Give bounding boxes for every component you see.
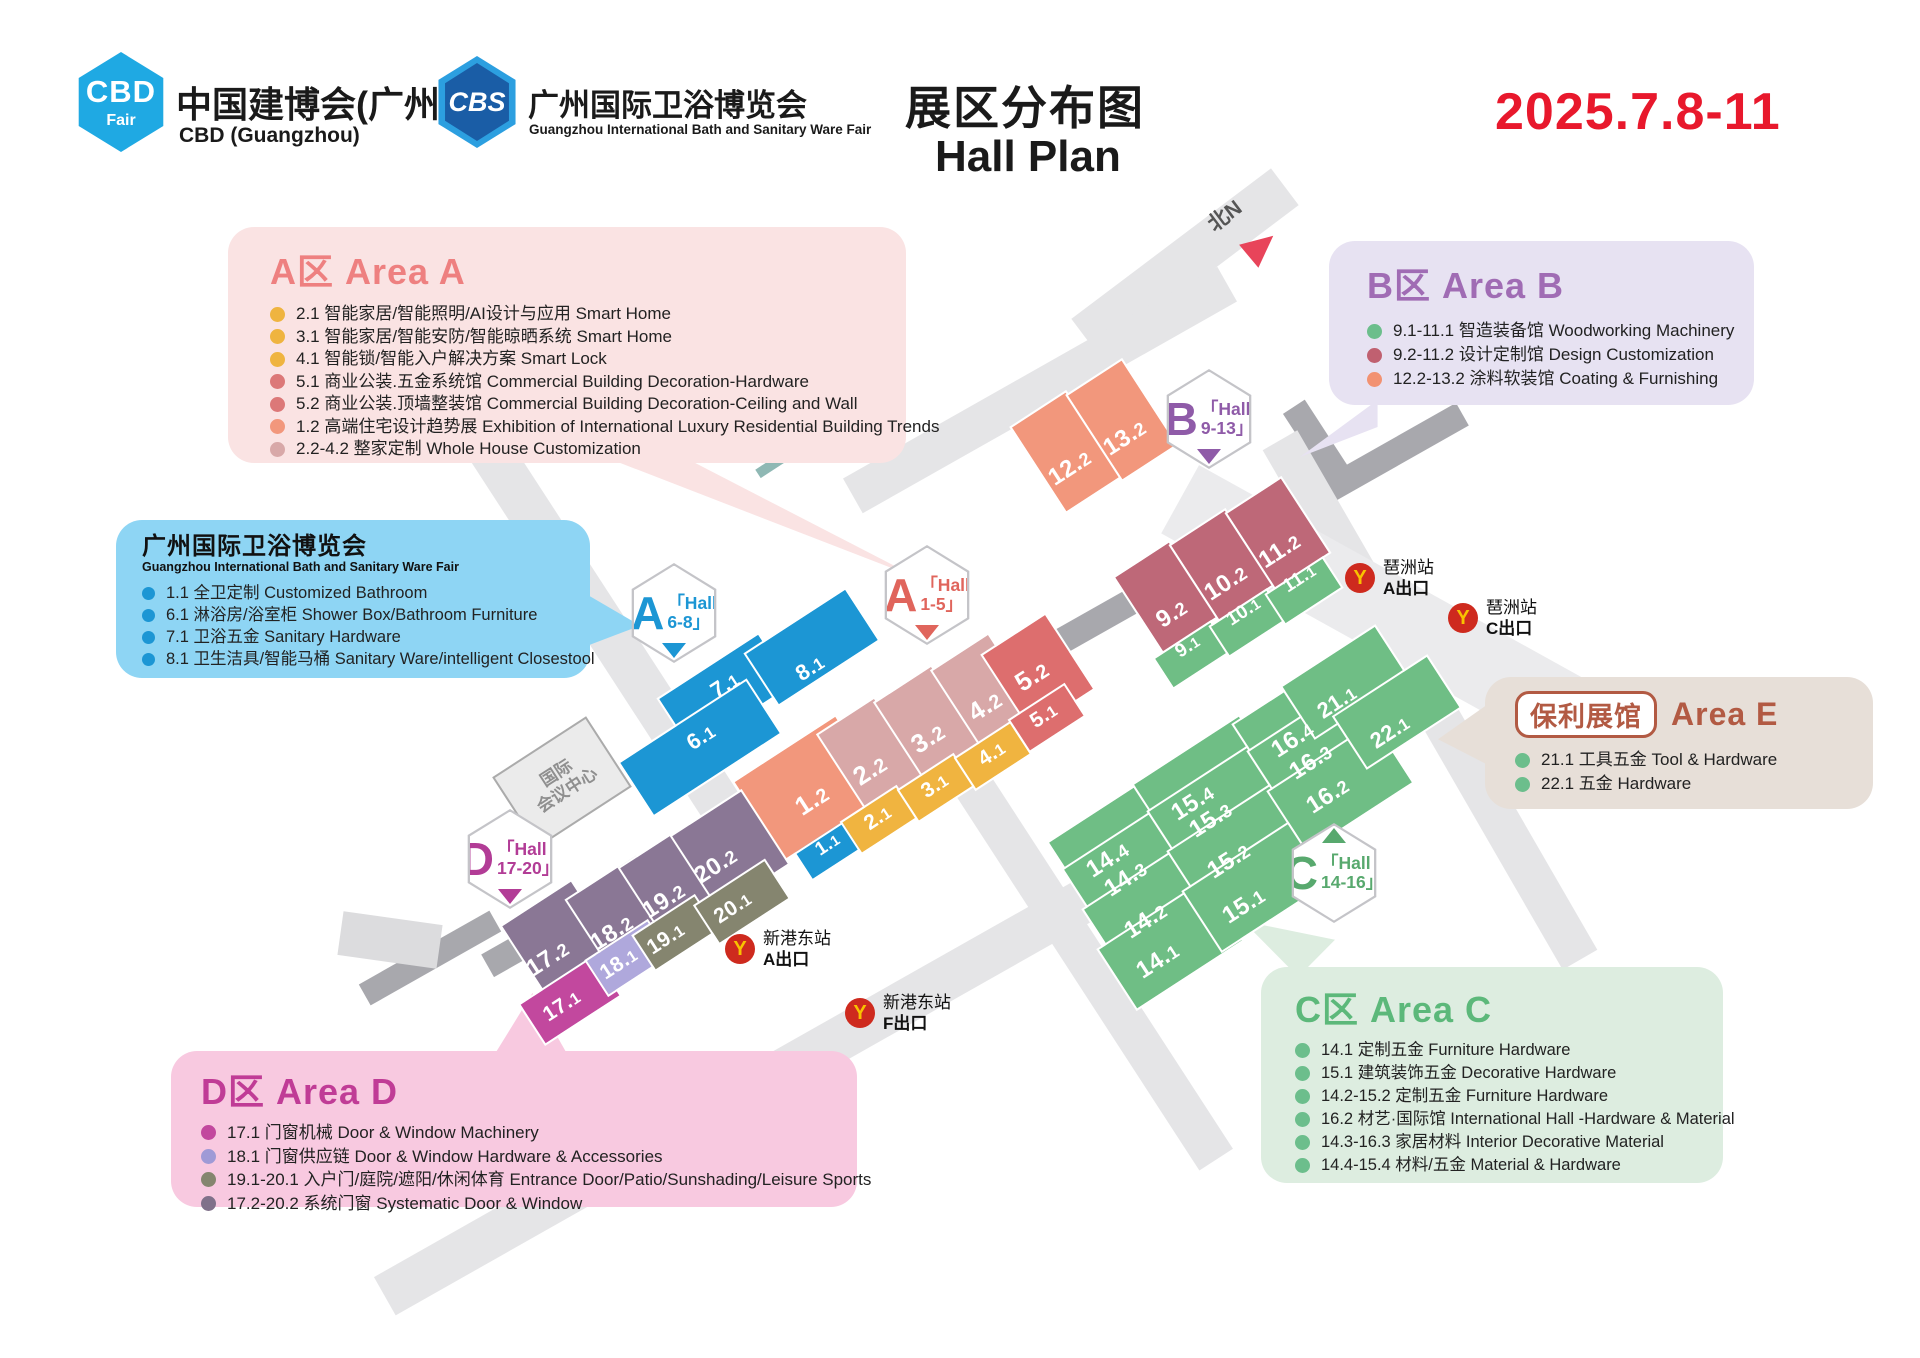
legend-dot-icon — [1367, 324, 1382, 339]
station-exit: C出口 — [1486, 618, 1537, 639]
station-exit: A出口 — [1383, 578, 1434, 599]
metro-icon: Y — [845, 998, 875, 1028]
metro-icon: Y — [1345, 563, 1375, 593]
legend-item: 22.1 五金 Hardware — [1515, 772, 1857, 796]
hall-badge: C 「Hall 14-16」 — [1288, 823, 1380, 923]
legend-item: 18.1 门窗供应链 Door & Window Hardware & Acce… — [201, 1145, 841, 1169]
hall-badge: B 「Hall 9-13」 — [1163, 369, 1255, 469]
legend-area-d: D区 Area D 17.1 门窗机械 Door & Window Machin… — [171, 1051, 857, 1207]
badge-letter: C — [1285, 850, 1318, 896]
metro-station-label: 新港东站 F出口 — [883, 992, 951, 1035]
road — [337, 911, 442, 968]
legend-item: 21.1 工具五金 Tool & Hardware — [1515, 748, 1857, 772]
badge-hall-range: 「Hall 6-8」 — [667, 594, 717, 632]
station-name: 琶洲站 — [1486, 597, 1537, 618]
badge-wedge-icon — [1322, 828, 1346, 843]
legend-dot-icon — [201, 1196, 216, 1211]
legend-bath-subtitle: Guangzhou International Bath and Sanitar… — [142, 560, 572, 574]
legend-item: 5.2 商业公装.顶墙整装馆 Commercial Building Decor… — [270, 393, 886, 416]
badge-wedge-icon — [915, 625, 939, 640]
legend-bath-items: 1.1 全卫定制 Customized Bathroom6.1 淋浴房/浴室柜 … — [142, 582, 572, 670]
legend-item: 8.1 卫生洁具/智能马桶 Sanitary Ware/intelligent … — [142, 648, 572, 670]
legend-area-a-title: A区 Area A — [270, 243, 886, 295]
badge-letter: D — [461, 836, 494, 882]
hall-badge: A 「Hall 6-8」 — [628, 563, 720, 663]
legend-item: 9.2-11.2 设计定制馆 Design Customization — [1367, 343, 1736, 367]
legend-dot-icon — [270, 442, 285, 457]
legend-dot-icon — [270, 352, 285, 367]
legend-item: 5.1 商业公装.五金系统馆 Commercial Building Decor… — [270, 371, 886, 394]
legend-area-a: A区 Area A 2.1 智能家居/智能照明/AI设计与应用 Smart Ho… — [228, 227, 906, 463]
legend-dot-icon — [1367, 348, 1382, 363]
legend-item: 4.1 智能锁/智能入户解决方案 Smart Lock — [270, 348, 886, 371]
badge-letter: A — [631, 590, 664, 636]
legend-area-b-items: 9.1-11.1 智造装备馆 Woodworking Machinery9.2-… — [1367, 319, 1736, 391]
legend-area-a-items: 2.1 智能家居/智能照明/AI设计与应用 Smart Home3.1 智能家居… — [270, 303, 886, 461]
legend-item: 12.2-13.2 涂料软装馆 Coating & Furnishing — [1367, 367, 1736, 391]
legend-area-e: 保利展馆 Area E 21.1 工具五金 Tool & Hardware22.… — [1485, 677, 1873, 809]
metro-icon: Y — [1448, 603, 1478, 633]
legend-item: 2.2-4.2 整家定制 Whole House Customization — [270, 438, 886, 461]
cbs-logo-text: CBS — [448, 87, 505, 118]
station-exit: A出口 — [763, 949, 831, 970]
expo-title-cn: 中国建博会(广州) — [176, 76, 452, 128]
cbd-logo-text: CBD — [86, 74, 156, 110]
legend-item: 2.1 智能家居/智能照明/AI设计与应用 Smart Home — [270, 303, 886, 326]
legend-item: 17.1 门窗机械 Door & Window Machinery — [201, 1121, 841, 1145]
legend-dot-icon — [142, 587, 155, 600]
legend-item: 1.1 全卫定制 Customized Bathroom — [142, 582, 572, 604]
station-name: 新港东站 — [883, 992, 951, 1013]
cbd-fair-logo-icon: CBD Fair — [76, 52, 166, 152]
legend-dot-icon — [201, 1172, 216, 1187]
legend-area-b-title: B区 Area B — [1367, 257, 1736, 309]
legend-dot-icon — [1367, 372, 1382, 387]
legend-item: 9.1-11.1 智造装备馆 Woodworking Machinery — [1367, 319, 1736, 343]
legend-area-e-title: 保利展馆 Area E — [1515, 691, 1857, 738]
metro-station-label: 新港东站 A出口 — [763, 928, 831, 971]
legend-area-b: B区 Area B 9.1-11.1 智造装备馆 Woodworking Mac… — [1329, 241, 1754, 405]
legend-item: 14.3-16.3 家居材料 Interior Decorative Mater… — [1295, 1131, 1707, 1154]
legend-item: 14.2-15.2 定制五金 Furniture Hardware — [1295, 1085, 1707, 1108]
legend-dot-icon — [270, 419, 285, 434]
metro-station-label: 琶洲站 C出口 — [1486, 597, 1537, 640]
legend-dot-icon — [1515, 753, 1530, 768]
cbd-logo-fair-text: Fair — [106, 112, 135, 130]
legend-dot-icon — [270, 307, 285, 322]
legend-area-c: C区 Area C 14.1 定制五金 Furniture Hardware15… — [1261, 967, 1723, 1183]
expo-title-en: CBD (Guangzhou) — [179, 124, 360, 148]
legend-dot-icon — [142, 631, 155, 644]
legend-dot-icon — [201, 1125, 216, 1140]
新港东站: Y 新港东站 F出口 — [845, 992, 951, 1035]
hall-badge: A 「Hall 1-5」 — [881, 545, 973, 645]
legend-item: 3.1 智能家居/智能安防/智能晾晒系统 Smart Home — [270, 326, 886, 349]
legend-item: 7.1 卫浴五金 Sanitary Hardware — [142, 626, 572, 648]
legend-dot-icon — [1295, 1043, 1310, 1058]
新港东站: Y 新港东站 A出口 — [725, 928, 831, 971]
legend-item: 16.2 材艺·国际馆 International Hall -Hardware… — [1295, 1108, 1707, 1131]
legend-area-d-items: 17.1 门窗机械 Door & Window Machinery18.1 门窗… — [201, 1121, 841, 1215]
legend-area-c-items: 14.1 定制五金 Furniture Hardware15.1 建筑装饰五金 … — [1295, 1039, 1707, 1177]
station-name: 新港东站 — [763, 928, 831, 949]
page-title-cn: 展区分布图 — [905, 72, 1145, 138]
fair-date: 2025.7.8-11 — [1495, 82, 1781, 142]
legend-dot-icon — [142, 609, 155, 622]
legend-item: 14.1 定制五金 Furniture Hardware — [1295, 1039, 1707, 1062]
legend-dot-icon — [1295, 1089, 1310, 1104]
badge-hall-range: 「Hall 14-16」 — [1321, 854, 1383, 892]
legend-dot-icon — [1295, 1135, 1310, 1150]
convention-center-label: 国际 会议中心 — [522, 746, 601, 817]
legend-dot-icon — [1295, 1112, 1310, 1127]
legend-item: 15.1 建筑装饰五金 Decorative Hardware — [1295, 1062, 1707, 1085]
legend-dot-icon — [1515, 777, 1530, 792]
badge-wedge-icon — [662, 643, 686, 658]
badge-hall-range: 「Hall 17-20」 — [497, 840, 559, 878]
legend-area-c-title: C区 Area C — [1295, 981, 1707, 1033]
legend-dot-icon — [1295, 1066, 1310, 1081]
legend-dot-icon — [201, 1149, 216, 1164]
area-e-title-text: Area E — [1671, 696, 1778, 733]
badge-letter: A — [884, 572, 917, 618]
bath-fair-title-en: Guangzhou International Bath and Sanitar… — [529, 122, 871, 137]
legend-dot-icon — [1295, 1158, 1310, 1173]
cbs-logo-icon: CBS — [436, 56, 518, 148]
page-title-en: Hall Plan — [935, 132, 1121, 182]
station-name: 琶洲站 — [1383, 557, 1434, 578]
hall-plan-canvas: CBD Fair 中国建博会(广州) CBD (Guangzhou) CBS 广… — [0, 0, 1920, 1358]
legend-item: 1.2 高端住宅设计趋势展 Exhibition of Internationa… — [270, 416, 886, 439]
badge-letter: B — [1165, 396, 1198, 442]
metro-station-label: 琶洲站 A出口 — [1383, 557, 1434, 600]
legend-item: 14.4-15.4 材料/五金 Material & Hardware — [1295, 1154, 1707, 1177]
badge-wedge-icon — [498, 889, 522, 904]
legend-dot-icon — [142, 653, 155, 666]
legend-area-e-items: 21.1 工具五金 Tool & Hardware22.1 五金 Hardwar… — [1515, 748, 1857, 796]
cbs-logo-inner: CBS — [443, 63, 511, 141]
legend-area-d-title: D区 Area D — [201, 1063, 841, 1115]
metro-icon: Y — [725, 934, 755, 964]
legend-dot-icon — [270, 329, 285, 344]
hall-badge: D 「Hall 17-20」 — [464, 809, 556, 909]
legend-bath-fair: 广州国际卫浴博览会 Guangzhou International Bath a… — [116, 520, 590, 678]
badge-wedge-icon — [1197, 449, 1221, 464]
badge-hall-range: 「Hall 1-5」 — [920, 576, 970, 614]
station-exit: F出口 — [883, 1013, 951, 1034]
legend-dot-icon — [270, 374, 285, 389]
琶洲站: Y 琶洲站 C出口 — [1448, 597, 1537, 640]
legend-item: 19.1-20.1 入户门/庭院/遮阳/休闲体育 Entrance Door/P… — [201, 1168, 841, 1192]
琶洲站: Y 琶洲站 A出口 — [1345, 557, 1434, 600]
poly-hall-pill: 保利展馆 — [1515, 691, 1657, 738]
legend-item: 17.2-20.2 系统门窗 Systematic Door & Window — [201, 1192, 841, 1216]
legend-bath-title: 广州国际卫浴博览会 — [142, 534, 572, 560]
badge-hall-range: 「Hall 9-13」 — [1201, 400, 1254, 438]
bath-fair-title-cn: 广州国际卫浴博览会 — [528, 80, 807, 125]
legend-item: 6.1 淋浴房/浴室柜 Shower Box/Bathroom Furnitur… — [142, 604, 572, 626]
legend-dot-icon — [270, 397, 285, 412]
